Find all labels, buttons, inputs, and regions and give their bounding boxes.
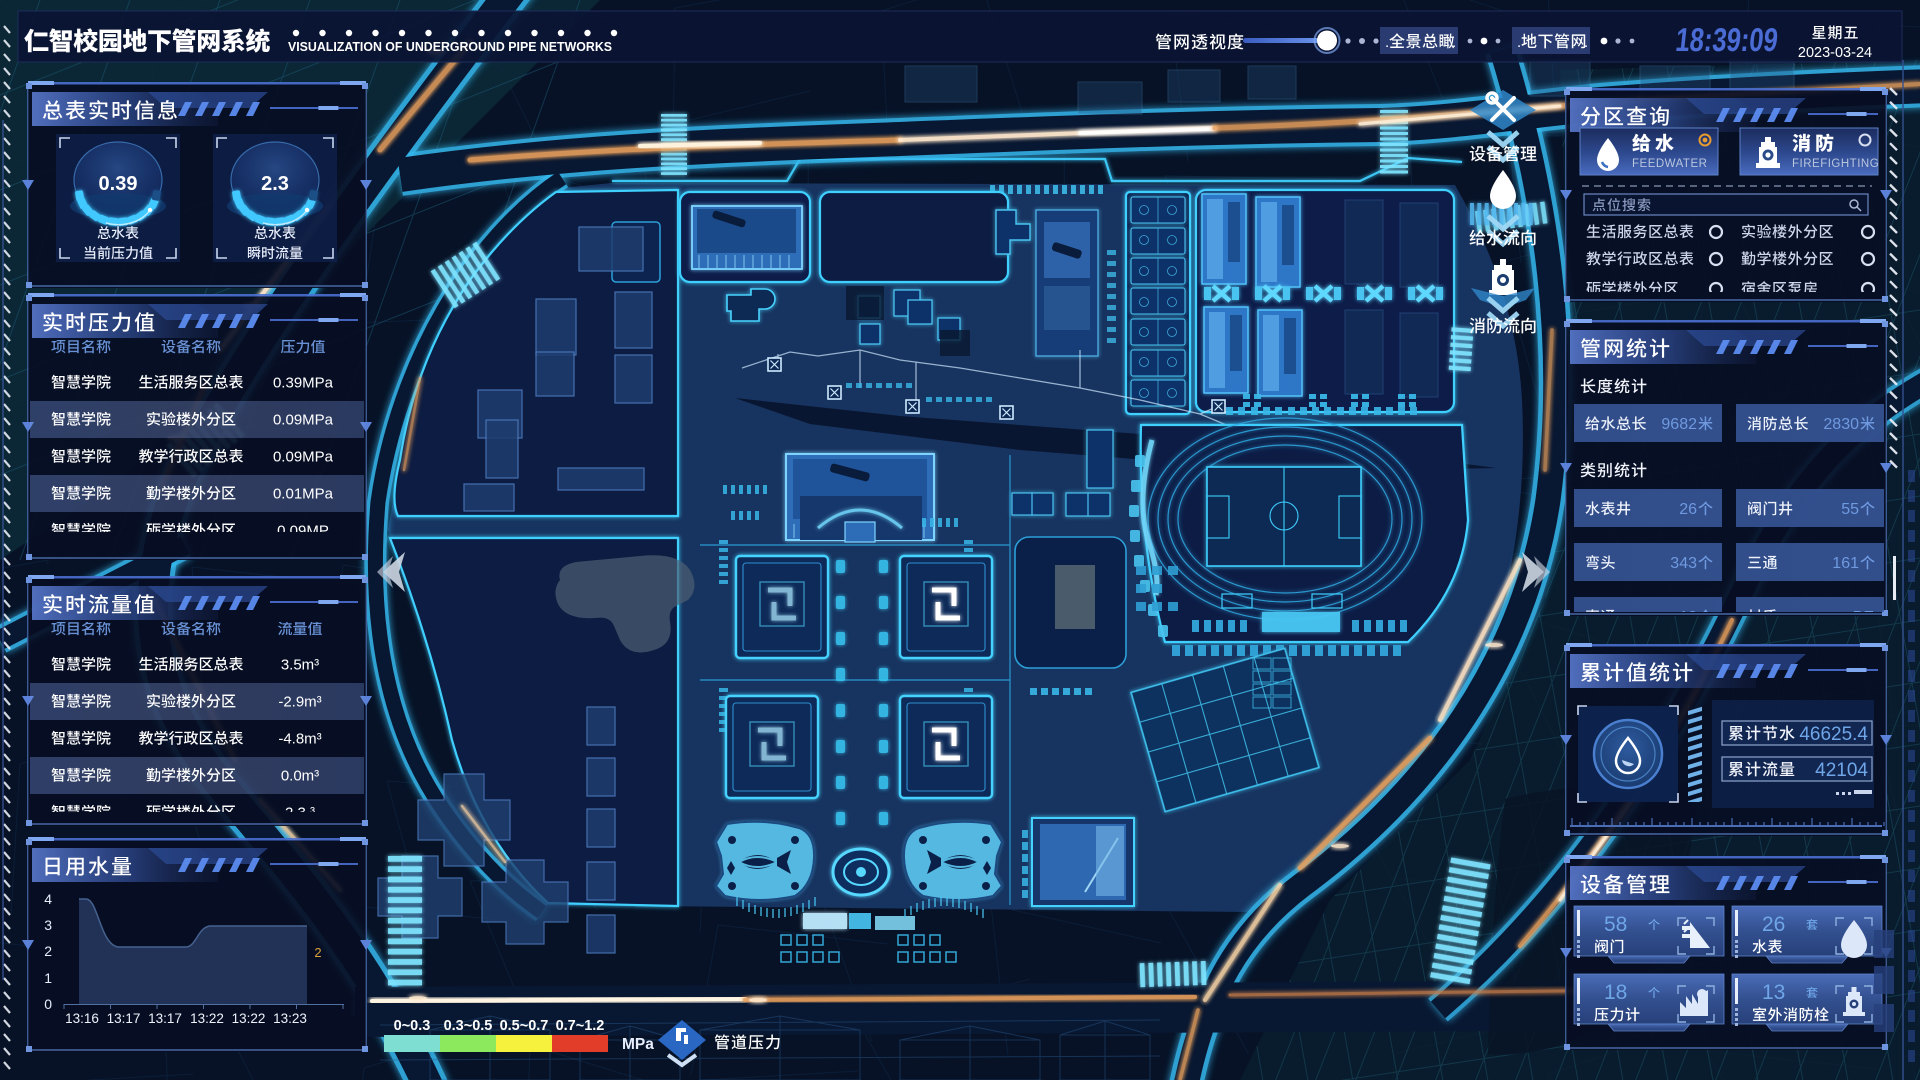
svg-text:2830: 2830 bbox=[1823, 416, 1859, 433]
svg-text:13:22: 13:22 bbox=[190, 1011, 224, 1026]
svg-text:FIREFIGHTING: FIREFIGHTING bbox=[1792, 158, 1879, 170]
svg-text:13:22: 13:22 bbox=[232, 1011, 266, 1026]
svg-text:1: 1 bbox=[44, 970, 52, 986]
svg-text:13:16: 13:16 bbox=[65, 1011, 99, 1026]
svg-text:18:39:09: 18:39:09 bbox=[1674, 22, 1780, 59]
svg-text:9682: 9682 bbox=[1661, 416, 1697, 433]
svg-text:13:17: 13:17 bbox=[107, 1011, 141, 1026]
svg-text:-2.9m³: -2.9m³ bbox=[278, 694, 321, 711]
svg-text:0: 0 bbox=[44, 996, 52, 1012]
svg-text:VISUALIZATION OF UNDERGROUND P: VISUALIZATION OF UNDERGROUND PIPE NETWOR… bbox=[288, 39, 612, 54]
svg-text:0.39: 0.39 bbox=[99, 173, 138, 195]
svg-text:0.3~0.5: 0.3~0.5 bbox=[444, 1018, 493, 1034]
svg-text:.: . bbox=[1584, 34, 1588, 51]
svg-text:13:17: 13:17 bbox=[148, 1011, 182, 1026]
svg-text:.: . bbox=[1452, 34, 1456, 51]
svg-text:0.0m³: 0.0m³ bbox=[281, 768, 319, 785]
svg-text:13:23: 13:23 bbox=[273, 1011, 307, 1026]
svg-text:0.01MPa: 0.01MPa bbox=[273, 486, 334, 503]
svg-text:3: 3 bbox=[44, 917, 52, 933]
svg-text:0.5~0.7: 0.5~0.7 bbox=[500, 1018, 549, 1034]
svg-text:161: 161 bbox=[1832, 555, 1859, 572]
svg-text:-4.8m³: -4.8m³ bbox=[278, 731, 321, 748]
svg-text:46625.4: 46625.4 bbox=[1799, 724, 1868, 745]
svg-text:18: 18 bbox=[1604, 981, 1627, 1004]
svg-text:2: 2 bbox=[44, 943, 52, 959]
svg-text:FEEDWATER: FEEDWATER bbox=[1632, 158, 1707, 170]
svg-text:2.3: 2.3 bbox=[261, 173, 289, 195]
svg-text:4: 4 bbox=[44, 891, 52, 907]
svg-text:3.5m³: 3.5m³ bbox=[281, 657, 319, 674]
svg-text:2: 2 bbox=[314, 945, 321, 960]
svg-text:0.09MPa: 0.09MPa bbox=[273, 412, 334, 429]
svg-text:343: 343 bbox=[1670, 555, 1697, 572]
svg-text:0.7~1.2: 0.7~1.2 bbox=[556, 1018, 605, 1034]
svg-text:26: 26 bbox=[1679, 501, 1697, 518]
svg-text:26: 26 bbox=[1762, 913, 1785, 936]
svg-text:0~0.3: 0~0.3 bbox=[394, 1018, 431, 1034]
svg-text:13: 13 bbox=[1762, 981, 1785, 1004]
svg-text:.: . bbox=[1385, 34, 1389, 51]
svg-text:MPa: MPa bbox=[622, 1036, 654, 1053]
svg-text:55: 55 bbox=[1841, 501, 1859, 518]
svg-text:0.39MPa: 0.39MPa bbox=[273, 375, 334, 392]
svg-text:58: 58 bbox=[1604, 913, 1627, 936]
svg-text:42104: 42104 bbox=[1815, 760, 1868, 781]
svg-text:0.09MPa: 0.09MPa bbox=[273, 449, 334, 466]
svg-text:2023-03-24: 2023-03-24 bbox=[1798, 45, 1872, 61]
svg-text:.: . bbox=[1517, 34, 1521, 51]
